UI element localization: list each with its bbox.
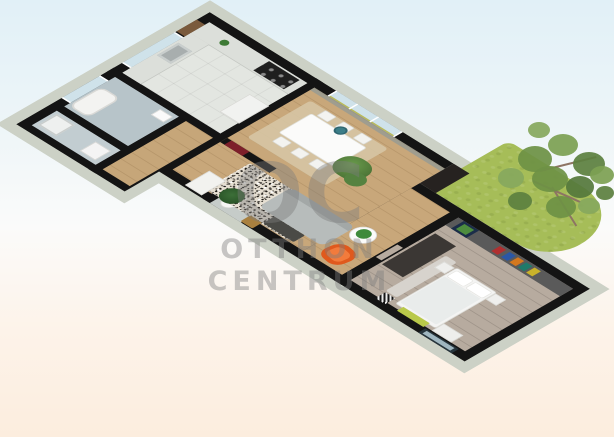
tree-foliage xyxy=(546,196,576,218)
tree-foliage xyxy=(578,198,600,214)
tree-foliage xyxy=(590,166,614,184)
tree-foliage xyxy=(532,166,568,192)
tree xyxy=(478,108,614,258)
tree-foliage xyxy=(548,134,578,156)
tree-foliage xyxy=(508,192,532,210)
tree-foliage xyxy=(596,186,614,200)
tree-foliage xyxy=(566,176,594,198)
tree-foliage xyxy=(528,122,550,138)
tree-foliage xyxy=(498,168,524,188)
screenshot-root: { "watermark": { "logo": "OC", "line1": … xyxy=(0,0,614,437)
